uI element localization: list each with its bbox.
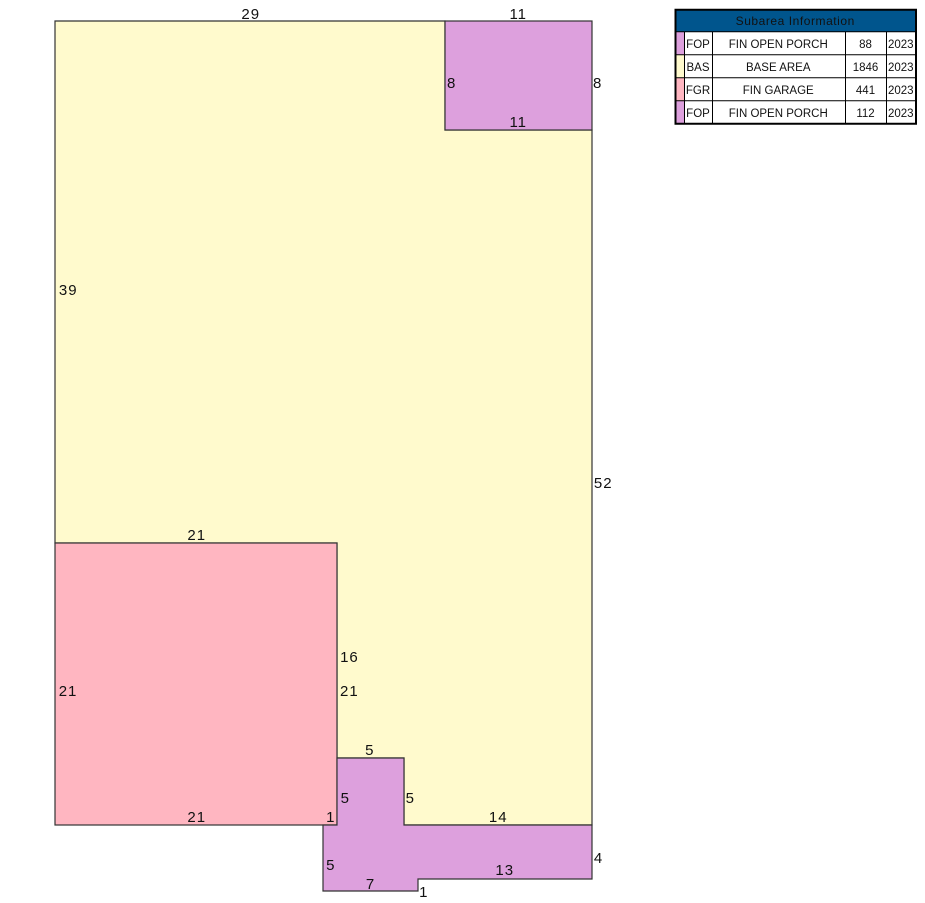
svg-text:14: 14 (489, 809, 508, 826)
svg-text:11: 11 (509, 114, 527, 131)
svg-text:8: 8 (447, 75, 456, 92)
svg-text:FGR: FGR (686, 85, 710, 97)
svg-text:8: 8 (593, 75, 602, 92)
svg-text:FIN GARAGE: FIN GARAGE (743, 85, 814, 97)
svg-text:BAS: BAS (686, 62, 709, 74)
svg-text:13: 13 (495, 862, 514, 879)
svg-text:Subarea Information: Subarea Information (736, 14, 855, 28)
svg-text:BASE AREA: BASE AREA (746, 62, 811, 74)
svg-text:21: 21 (340, 683, 359, 700)
svg-text:FOP: FOP (686, 108, 710, 120)
svg-text:4: 4 (594, 850, 603, 867)
svg-text:1: 1 (326, 809, 335, 826)
svg-text:1: 1 (419, 884, 428, 901)
svg-text:112: 112 (856, 108, 874, 120)
svg-text:21: 21 (59, 683, 78, 700)
svg-text:FIN OPEN PORCH: FIN OPEN PORCH (729, 39, 828, 51)
svg-text:52: 52 (594, 475, 613, 492)
svg-text:FOP: FOP (686, 39, 710, 51)
svg-text:16: 16 (340, 649, 359, 666)
svg-text:29: 29 (241, 6, 260, 23)
svg-text:FIN OPEN PORCH: FIN OPEN PORCH (729, 108, 828, 120)
svg-text:88: 88 (859, 39, 872, 51)
svg-text:2023: 2023 (888, 108, 914, 120)
svg-text:5: 5 (365, 742, 374, 759)
svg-text:11: 11 (509, 6, 527, 23)
svg-text:2023: 2023 (888, 39, 914, 51)
svg-text:2023: 2023 (888, 85, 914, 97)
svg-text:21: 21 (187, 527, 206, 544)
svg-text:5: 5 (326, 857, 335, 874)
svg-text:441: 441 (856, 85, 875, 97)
svg-text:5: 5 (406, 790, 415, 807)
svg-text:2023: 2023 (888, 62, 914, 74)
svg-text:21: 21 (187, 809, 206, 826)
svg-text:39: 39 (59, 282, 78, 299)
svg-text:5: 5 (341, 790, 350, 807)
svg-text:1846: 1846 (853, 62, 879, 74)
svg-text:7: 7 (366, 876, 375, 893)
